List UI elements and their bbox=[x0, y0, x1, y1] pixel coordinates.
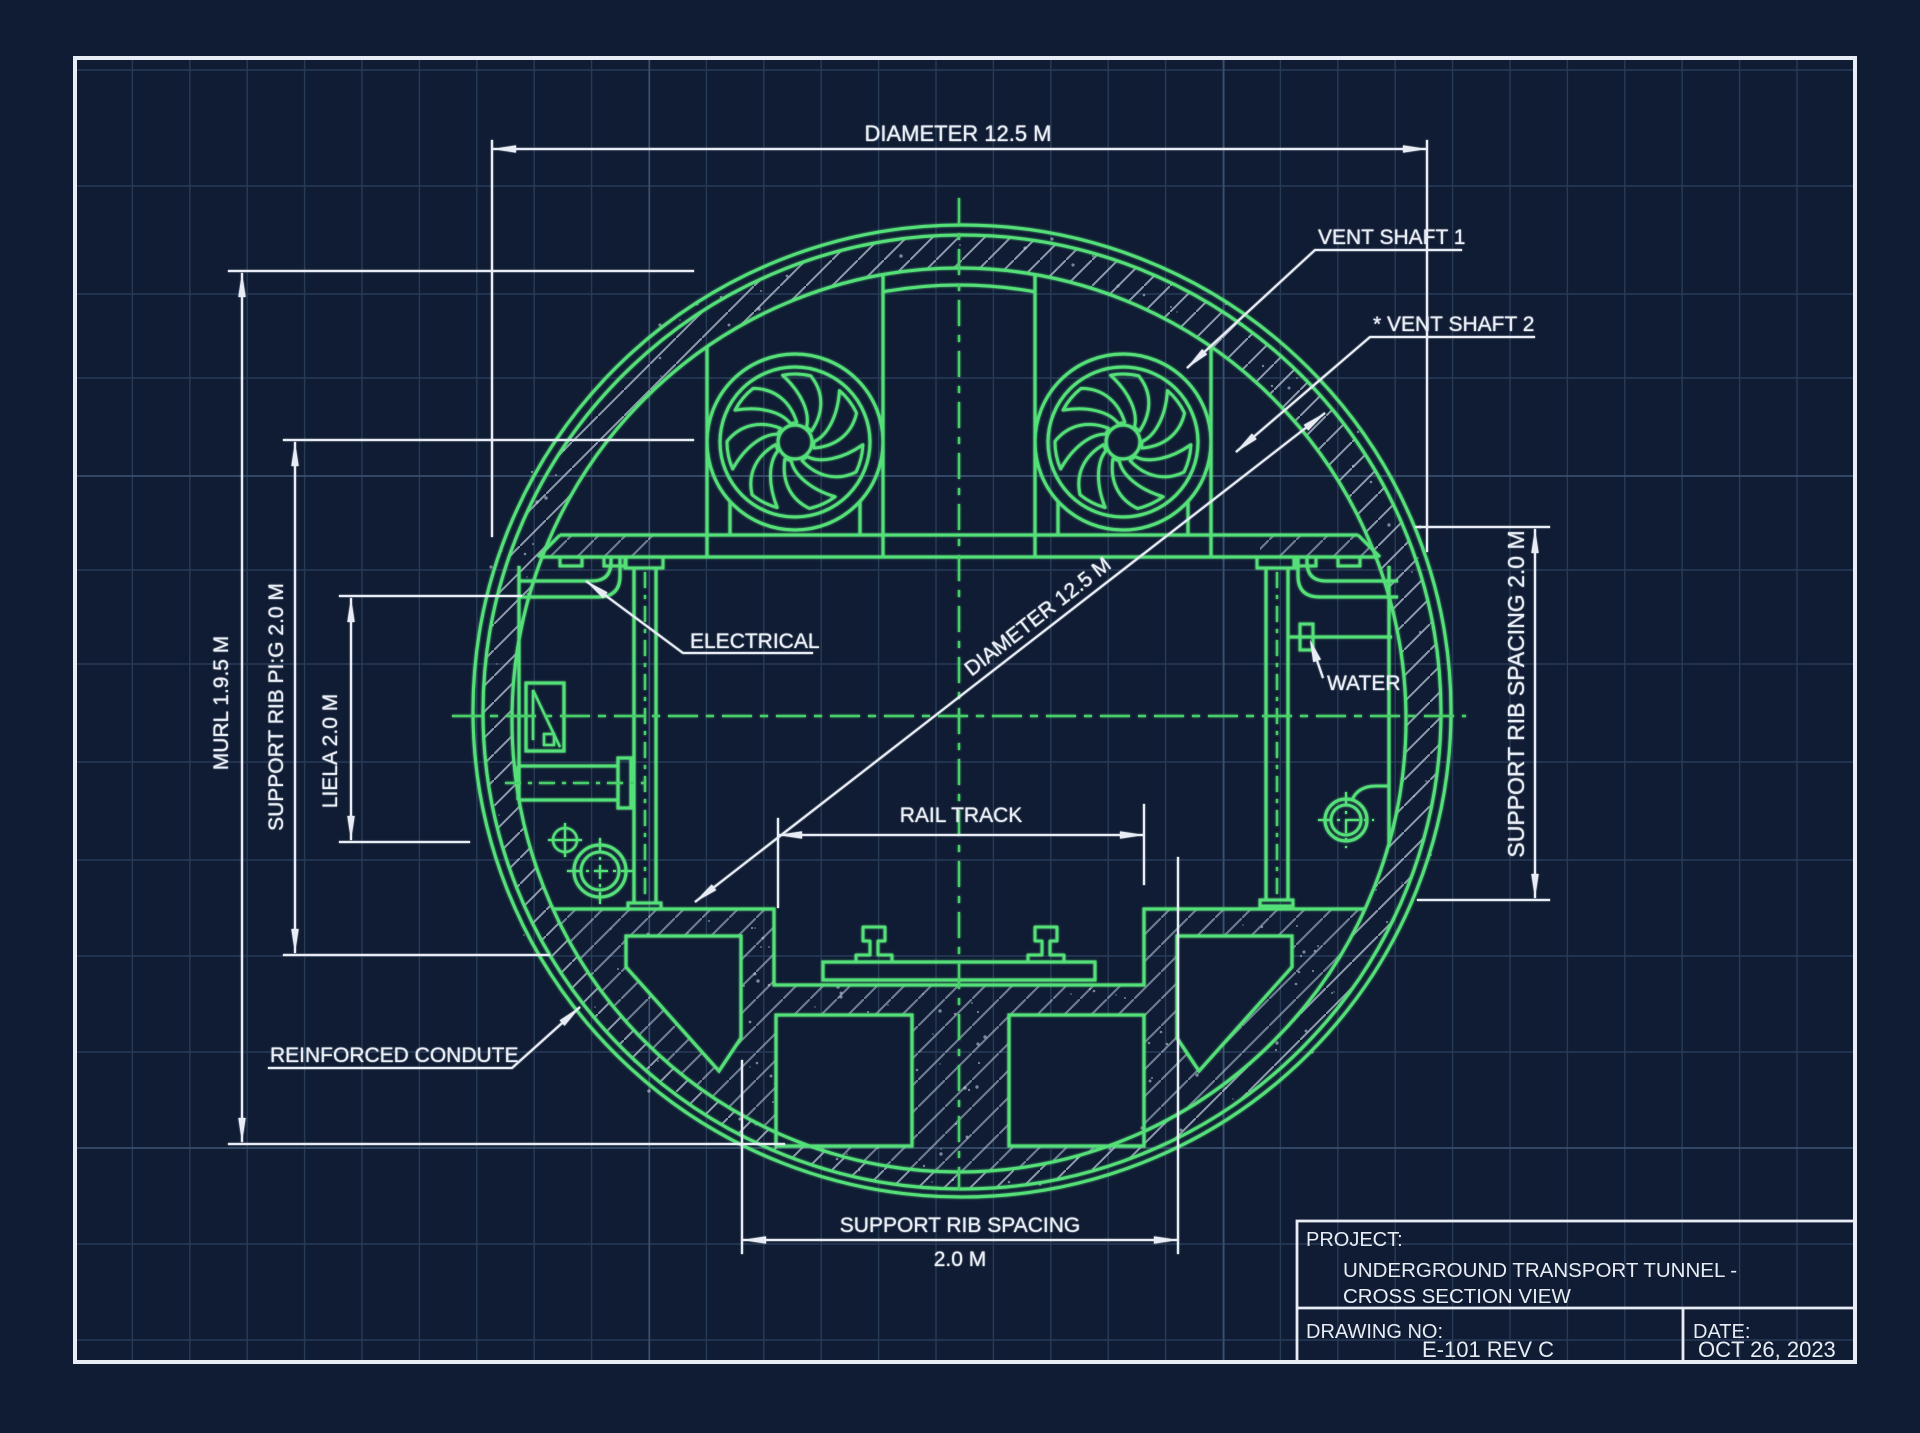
svg-text:DIAMETER 12.5 M: DIAMETER 12.5 M bbox=[864, 121, 1051, 146]
svg-text:SUPPORT RIB SPACING 2.0 M: SUPPORT RIB SPACING 2.0 M bbox=[1503, 530, 1529, 857]
svg-text:* VENT SHAFT 2: * VENT SHAFT 2 bbox=[1373, 313, 1534, 336]
svg-text:VENT SHAFT 1: VENT SHAFT 1 bbox=[1318, 226, 1465, 249]
svg-text:MURL 1.9.5 M: MURL 1.9.5 M bbox=[210, 636, 233, 771]
svg-text:WATER: WATER bbox=[1327, 672, 1401, 695]
svg-text:UNDERGROUND TRANSPORT TUNNEL -: UNDERGROUND TRANSPORT TUNNEL - bbox=[1343, 1259, 1737, 1282]
svg-text:OCT 26, 2023: OCT 26, 2023 bbox=[1698, 1337, 1836, 1362]
svg-text:E-101 REV C: E-101 REV C bbox=[1422, 1337, 1554, 1362]
svg-text:REINFORCED CONDUTE: REINFORCED CONDUTE bbox=[270, 1044, 519, 1067]
svg-text:SUPPORT RIB PI:G 2.0 M: SUPPORT RIB PI:G 2.0 M bbox=[265, 583, 288, 831]
svg-text:CROSS SECTION VIEW: CROSS SECTION VIEW bbox=[1343, 1285, 1571, 1308]
svg-text:LIELA 2.0 M: LIELA 2.0 M bbox=[319, 694, 342, 808]
svg-text:RAIL TRACK: RAIL TRACK bbox=[900, 804, 1023, 827]
svg-text:SUPPORT RIB SPACING: SUPPORT RIB SPACING bbox=[840, 1214, 1080, 1237]
svg-text:ELECTRICAL: ELECTRICAL bbox=[690, 630, 820, 653]
svg-text:2.0 M: 2.0 M bbox=[934, 1248, 987, 1271]
svg-text:PROJECT:: PROJECT: bbox=[1306, 1229, 1403, 1251]
